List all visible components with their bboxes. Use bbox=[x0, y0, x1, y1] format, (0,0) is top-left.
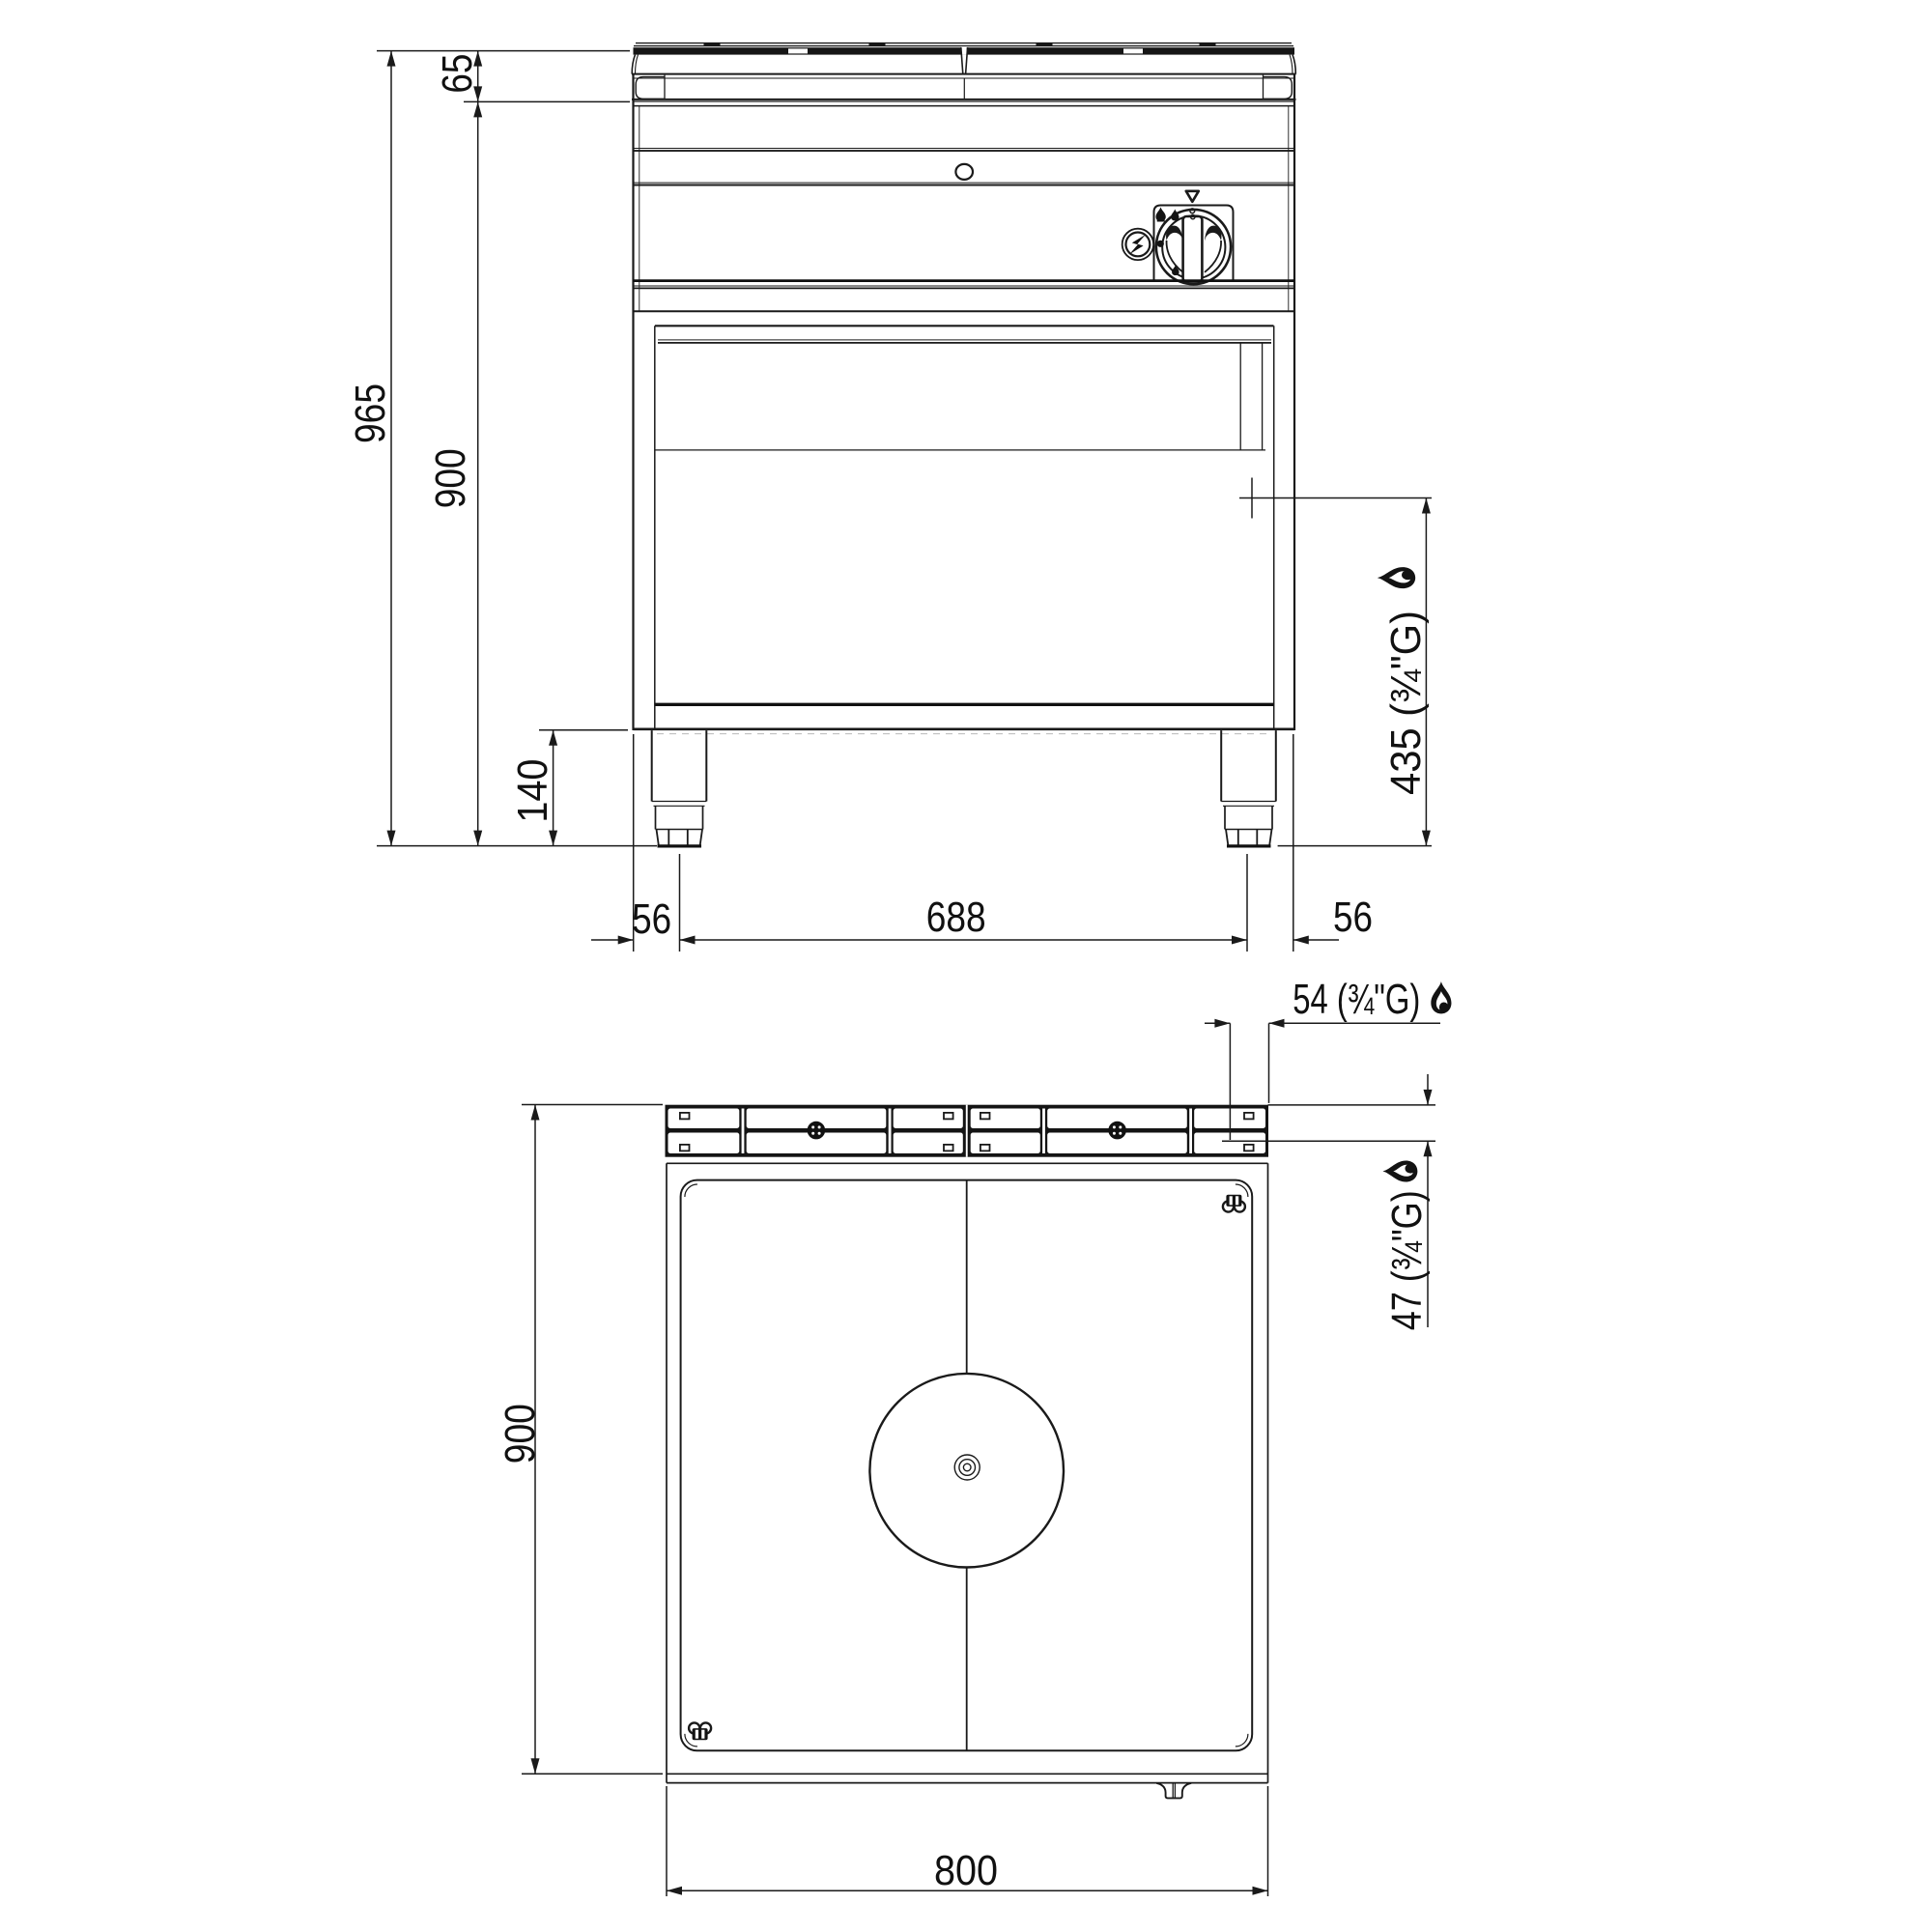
svg-text:800: 800 bbox=[934, 1847, 998, 1894]
svg-text:435 (¾"G): 435 (¾"G) bbox=[1382, 611, 1430, 795]
svg-text:688: 688 bbox=[926, 894, 986, 941]
svg-text:900: 900 bbox=[427, 448, 474, 508]
svg-text:47 (¾"G): 47 (¾"G) bbox=[1383, 1190, 1431, 1330]
svg-text:65: 65 bbox=[434, 54, 481, 94]
svg-text:56: 56 bbox=[1333, 894, 1373, 941]
svg-text:900: 900 bbox=[497, 1404, 544, 1463]
svg-text:140: 140 bbox=[509, 759, 556, 823]
svg-text:965: 965 bbox=[347, 384, 394, 443]
svg-text:54 (¾"G): 54 (¾"G) bbox=[1293, 976, 1420, 1023]
svg-text:56: 56 bbox=[632, 895, 671, 943]
